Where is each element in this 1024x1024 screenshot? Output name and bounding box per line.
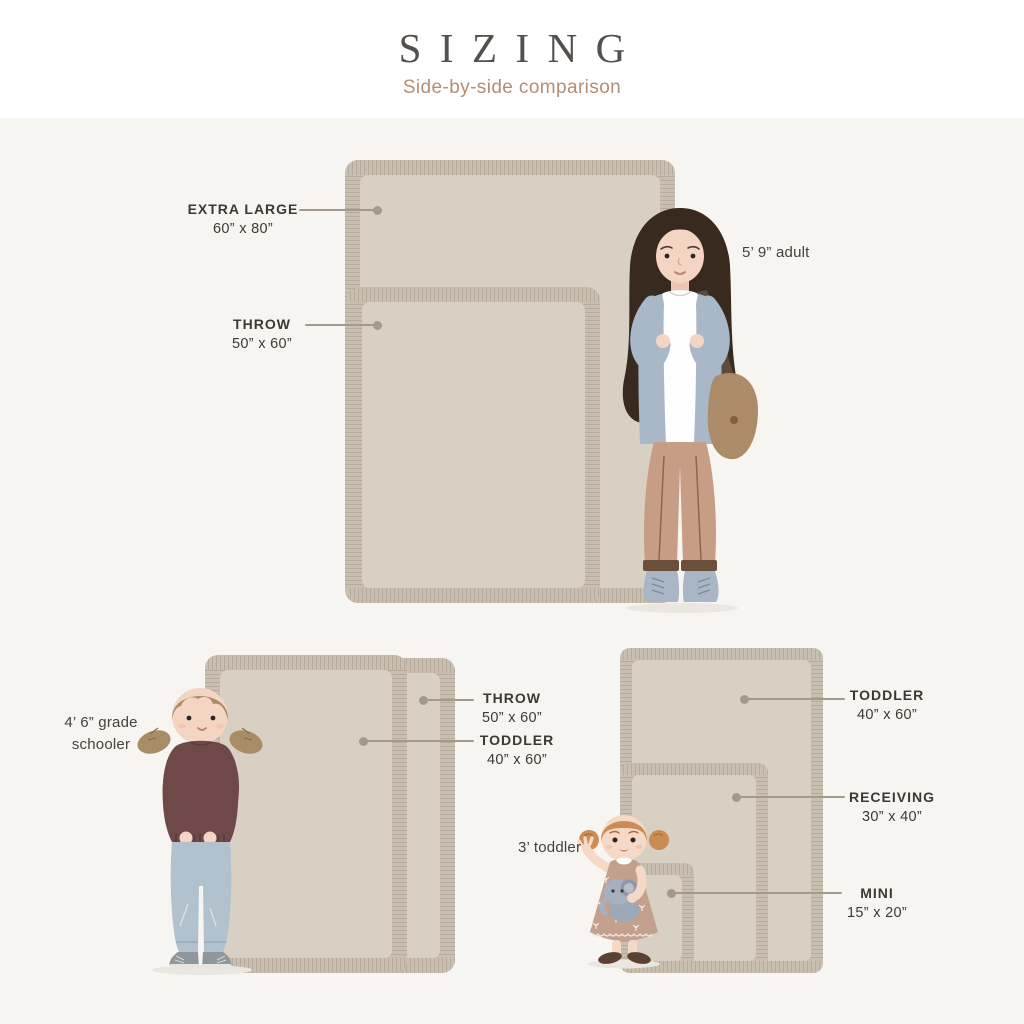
toddler-height-label: 3’ toddler	[518, 837, 581, 859]
page-subtitle: Side-by-side comparison	[0, 77, 1024, 99]
sizing-infographic: SIZING Side-by-side comparison	[0, 0, 1024, 1024]
callout-throw-bl-name: THROW	[472, 690, 552, 706]
callout-throw-bl-size: 50” x 60”	[472, 710, 552, 726]
toddler-illustration	[572, 806, 676, 970]
callout-receiving-name: RECEIVING	[846, 789, 938, 805]
header: SIZING Side-by-side comparison	[0, 26, 1024, 99]
adult-woman-icon	[600, 204, 770, 616]
blanket-throw-top-inner	[362, 302, 585, 588]
callout-receiving-line	[739, 796, 845, 798]
callout-toddler-br-line	[747, 698, 845, 700]
callout-mini-line	[674, 892, 842, 894]
adult-illustration	[600, 204, 770, 616]
callout-mini-name: MINI	[846, 885, 908, 901]
schooler-height-label: 4’ 6” grade schooler	[46, 712, 156, 756]
callout-receiving-size: 30” x 40”	[846, 809, 938, 825]
callout-extra-large-name: EXTRA LARGE	[182, 201, 304, 217]
callout-extra-large-dot	[373, 206, 382, 215]
callout-toddler-br-name: TODDLER	[847, 687, 927, 703]
blanket-throw-top	[347, 287, 600, 603]
adult-height-label: 5’ 9” adult	[742, 242, 810, 264]
callout-toddler-bl-name: TODDLER	[475, 732, 559, 748]
callout-toddler-bl: TODDLER 40” x 60”	[475, 732, 559, 768]
callout-extra-large-size: 60” x 80”	[182, 221, 304, 237]
page-title: SIZING	[0, 26, 1024, 71]
callout-toddler-br: TODDLER 40” x 60”	[847, 687, 927, 723]
callout-throw-top-name: THROW	[202, 316, 322, 332]
callout-toddler-br-size: 40” x 60”	[847, 707, 927, 723]
callout-throw-top: THROW 50” x 60”	[202, 316, 322, 352]
callout-toddler-bl-dot	[359, 737, 368, 746]
callout-mini-size: 15” x 20”	[846, 905, 908, 921]
callout-mini: MINI 15” x 20”	[846, 885, 908, 921]
comparison-stage: EXTRA LARGE 60” x 80” THROW 50” x 60” TH…	[0, 118, 1024, 1024]
callout-toddler-bl-size: 40” x 60”	[475, 752, 559, 768]
callout-throw-bl-dot	[419, 696, 428, 705]
callout-toddler-br-dot	[740, 695, 749, 704]
callout-throw-bl-line	[426, 699, 474, 701]
callout-throw-bl: THROW 50” x 60”	[472, 690, 552, 726]
callout-extra-large: EXTRA LARGE 60” x 80”	[182, 201, 304, 237]
callout-toddler-bl-line	[366, 740, 474, 742]
callout-receiving: RECEIVING 30” x 40”	[846, 789, 938, 825]
callout-receiving-dot	[732, 793, 741, 802]
callout-extra-large-line	[299, 209, 375, 211]
toddler-icon	[572, 806, 676, 970]
callout-throw-top-size: 50” x 60”	[202, 336, 322, 352]
callout-throw-top-dot	[373, 321, 382, 330]
